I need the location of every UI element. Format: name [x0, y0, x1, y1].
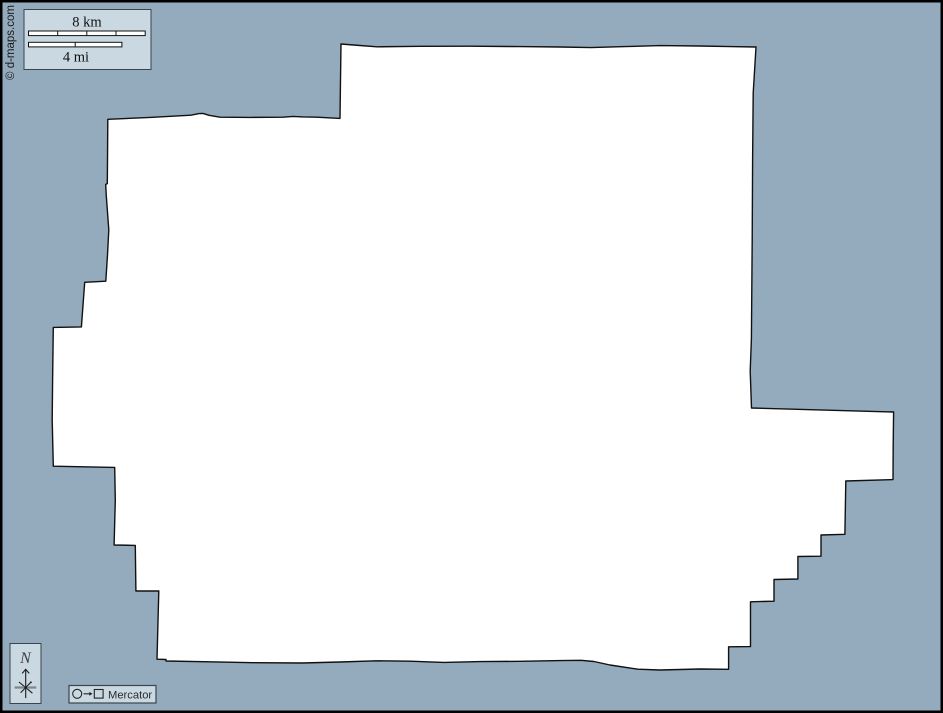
- svg-text:8 km: 8 km: [72, 14, 102, 30]
- svg-text:N: N: [19, 650, 32, 667]
- svg-text:Mercator: Mercator: [108, 689, 152, 701]
- svg-text:4 mi: 4 mi: [63, 50, 89, 66]
- svg-text:© d-maps.com: © d-maps.com: [5, 5, 17, 80]
